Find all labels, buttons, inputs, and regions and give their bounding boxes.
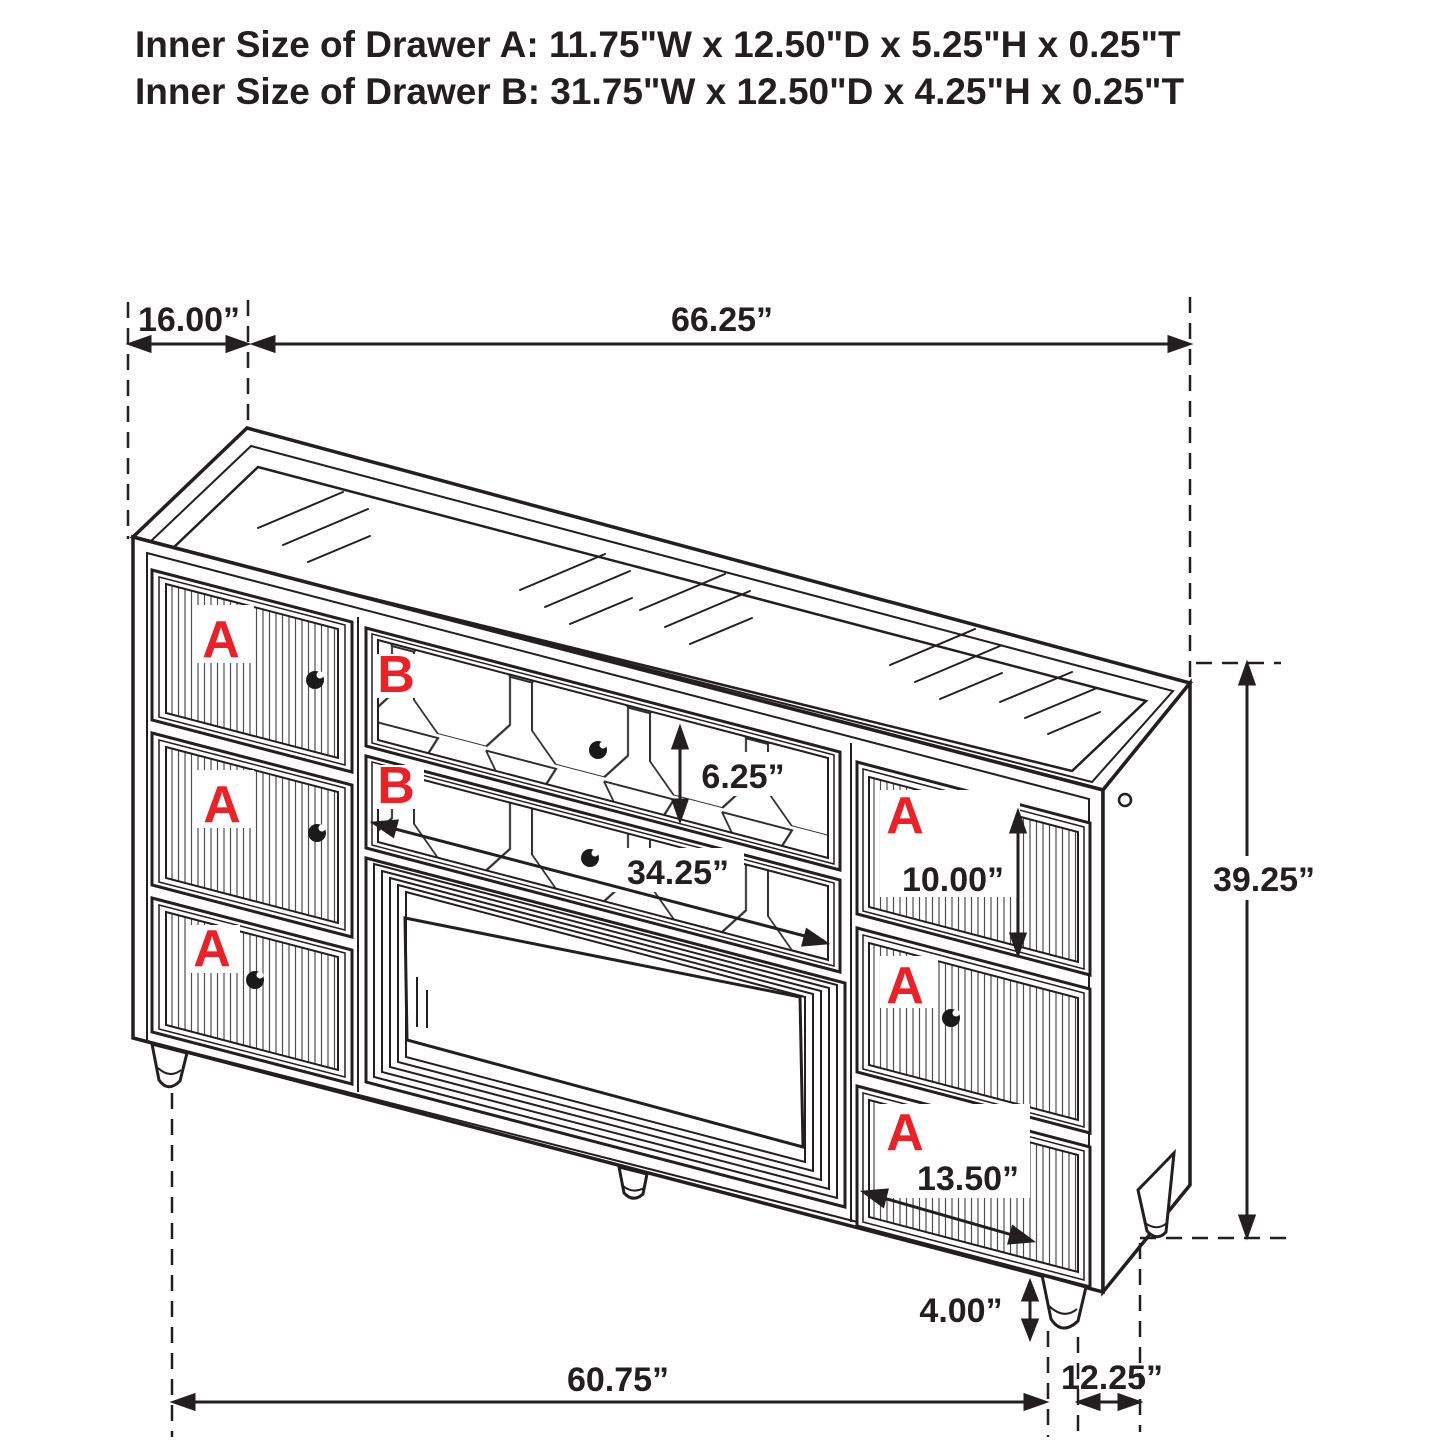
label-drawer-a3: A bbox=[193, 920, 231, 978]
center-leg bbox=[619, 1167, 647, 1198]
label-drawer-a5: A bbox=[886, 957, 924, 1015]
knob-icon bbox=[306, 671, 324, 689]
dim-base-width: 60.75” bbox=[567, 1361, 669, 1399]
title-line-1: Inner Size of Drawer A: 11.75"W x 12.50"… bbox=[135, 24, 1181, 65]
dim-leg-height: 4.00” bbox=[919, 1292, 1002, 1330]
dresser-dimension-diagram: Inner Size of Drawer A: 11.75"W x 12.50"… bbox=[0, 0, 1445, 1445]
knob-icon bbox=[246, 971, 264, 989]
title-line-2: Inner Size of Drawer B: 31.75"W x 12.50"… bbox=[135, 71, 1184, 112]
dim-top-depth: 16.00” bbox=[138, 301, 240, 339]
dim-b-height: 6.25” bbox=[701, 758, 784, 796]
knob-icon bbox=[581, 849, 599, 867]
label-drawer-b1: B bbox=[377, 646, 415, 704]
label-drawer-a6: A bbox=[886, 1104, 924, 1162]
dim-a-right-height: 10.00” bbox=[902, 861, 1004, 899]
knob-icon bbox=[308, 824, 326, 842]
label-drawer-b2: B bbox=[377, 757, 415, 815]
knob-icon bbox=[589, 741, 607, 759]
dim-overall-height: 39.25” bbox=[1213, 861, 1315, 899]
label-drawer-a4: A bbox=[886, 787, 924, 845]
title-block: Inner Size of Drawer A: 11.75"W x 12.50"… bbox=[135, 24, 1184, 112]
knob-icon bbox=[942, 1009, 960, 1027]
dim-base-depth: 12.25” bbox=[1061, 1359, 1163, 1397]
front-left-leg bbox=[152, 1044, 187, 1087]
dim-top-width: 66.25” bbox=[671, 301, 773, 339]
diagram-canvas: Inner Size of Drawer A: 11.75"W x 12.50"… bbox=[0, 0, 1445, 1445]
dim-a-right-width: 13.50” bbox=[917, 1160, 1019, 1198]
label-drawer-a2: A bbox=[203, 776, 241, 834]
dim-b-width: 34.25” bbox=[627, 854, 729, 892]
label-drawer-a1: A bbox=[202, 611, 240, 669]
